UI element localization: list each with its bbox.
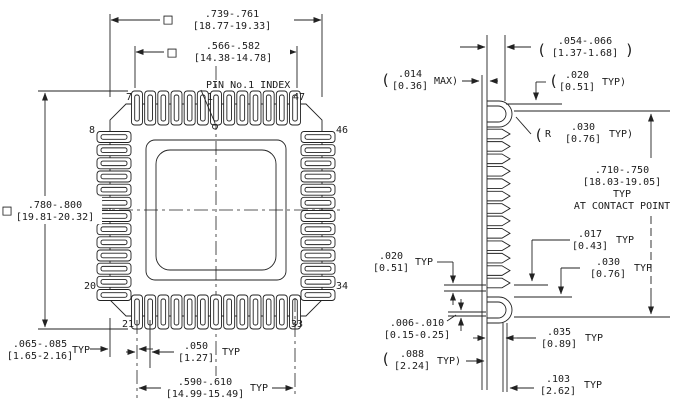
lead-shape [487,166,510,176]
lead-shape [97,276,131,287]
pin-21-label: 21 [122,319,134,330]
pin1-note-text: PIN No.1 INDEX [206,80,290,91]
lead-shape [263,91,274,125]
dim-inch: .065-.085 [13,339,67,350]
dim-corner-offset: .065-.085 [1.65-2.16] TYP [7,318,153,398]
dim-inch: .566-.582 [206,41,260,52]
dim-standoff: .006-.010 [0.15-0.25] [384,299,486,341]
lead-shape [97,263,131,274]
dim-mm: [14.38-14.78] [194,53,272,64]
dim-inch: .020 [565,70,589,81]
leads-right [301,132,335,301]
lead-shape [301,171,335,182]
dim-mm: [0.15-0.25] [384,330,450,341]
dim-mm: [0.43] [572,241,608,252]
leads-left [97,132,131,301]
dim-typ: TYP [584,380,602,391]
lead-shape [301,211,335,222]
dim-mm: [18.77-19.33] [193,21,271,32]
dim-foot-width: .035 [0.89] TYP [473,327,603,350]
lead-shape [224,91,235,125]
lead-shape [132,91,143,125]
j-lead-bottom [487,297,512,323]
paren-open: ( [549,72,558,90]
dim-mm: [18.03-19.05] [583,177,661,188]
dim-inch: .014 [398,69,422,80]
dim-max: MAX) [434,76,458,87]
dim-mm: [14.99-15.49] [166,389,244,400]
lead-shape [250,295,261,329]
dim-typ: TYP) [437,356,461,367]
dim-typ: TYP [415,257,433,268]
dim-protrusion: ( .014 [0.36] MAX) [381,69,498,92]
lead-shape [487,154,510,164]
dim-mm: [19.81-20.32] [16,212,94,223]
dim-typ: TYP [585,333,603,344]
lead-shape [171,295,182,329]
lead-shape [97,211,131,222]
lead-shape [171,91,182,125]
dim-typ: TYP [613,189,631,200]
pin-8-label: 8 [89,125,95,136]
dim-typ: TYP [72,345,90,356]
dim-mm: [0.36] [392,81,428,92]
lead-shape [97,171,131,182]
lead-shape [97,158,131,169]
lead-shape [487,266,510,276]
lead-shape [224,295,235,329]
lead-shape [250,91,261,125]
paren-close: ) [625,41,634,59]
dim-pitch: .050 [1.27] TYP [126,320,240,368]
lead-shape [97,224,131,235]
dim-inch: .035 [547,327,571,338]
lead-shape [301,145,335,156]
lead-shape [301,158,335,169]
lead-shape [197,295,208,329]
dim-mm: [0.89] [541,339,577,350]
dim-typ: TYP [634,263,652,274]
lead-shape [301,224,335,235]
dim-mm: [1.65-2.16] [7,351,73,362]
dim-inch: .050 [184,341,208,352]
lead-shape [97,132,131,143]
lead-shape [158,91,169,125]
top-view: 7 1 47 8 46 20 34 21 33 PIN No.1 INDEX □… [0,6,348,402]
dim-inch: .590-.610 [178,377,232,388]
square-symbol: □ [167,43,176,61]
lead-shape [237,91,248,125]
dim-mm: [2.24] [394,361,430,372]
dim-mm: [1.37-1.68] [552,48,618,59]
package-dimension-drawing: 7 1 47 8 46 20 34 21 33 PIN No.1 INDEX □… [0,0,691,407]
dim-mm: [0.76] [565,134,601,145]
lead-shape [301,197,335,208]
dim-curl-depth: ( .088 [2.24] TYP) [381,349,484,372]
leads-top [132,91,301,125]
lead-shape [301,290,335,301]
radius-symbol: R [545,129,552,140]
lead-shape [301,132,335,143]
lead-shape [487,278,510,288]
paren-open: ( [381,350,390,368]
side-view: ( .054-.066 [1.37-1.68] ) ( .014 [0.36] … [373,35,670,397]
lead-shape [487,241,510,251]
lead-shape [276,91,287,125]
lead-shape [301,263,335,274]
pin-1-label: 1 [207,92,213,103]
lead-shape [276,295,287,329]
lead-shape [211,295,222,329]
lead-shape [487,216,510,226]
lead-shape [263,295,274,329]
dim-note: AT CONTACT POINT [574,201,670,212]
lead-shape [487,179,510,189]
dim-inch: .017 [578,229,602,240]
lead-shape [301,184,335,195]
lead-shape [97,290,131,301]
pin-7-label: 7 [126,92,132,103]
leads-bottom [132,295,301,329]
lead-shape [487,204,510,214]
dim-inch: .103 [546,374,570,385]
dim-typ: TYP) [602,77,626,88]
lead-shape [487,253,510,263]
dim-typ: TYP [250,383,268,394]
side-lead-bumps [487,129,510,288]
dim-inch: .780-.800 [28,200,82,211]
dim-mm: [0.76] [590,269,626,280]
paren-open: ( [537,41,546,59]
dim-hook-clearance: .030 [0.76] TYP [514,257,652,297]
lead-shape [487,191,510,201]
dim-inch: .088 [400,349,424,360]
drawing-svg: 7 1 47 8 46 20 34 21 33 PIN No.1 INDEX □… [0,0,691,407]
dim-typ: TYP) [609,129,633,140]
lead-shape [301,237,335,248]
dim-inch: .030 [571,122,595,133]
lead-shape [487,129,510,139]
dim-mm: [1.27] [178,353,214,364]
square-symbol: □ [2,201,11,219]
lead-shape [237,295,248,329]
dim-typ: TYP [222,347,240,358]
pin-34-label: 34 [336,281,348,292]
j-lead-top [487,101,512,127]
lead-shape [184,295,195,329]
lead-shape [301,250,335,261]
pin-47-label: 47 [293,92,305,103]
lead-shape [97,197,131,208]
dim-inch: .739-.761 [205,9,259,20]
pin-20-label: 20 [84,281,96,292]
dim-inch: .020 [379,251,403,262]
lead-shape [97,250,131,261]
dim-inch: .710-.750 [595,165,649,176]
paren-open: ( [381,71,390,89]
lead-shape [145,91,156,125]
lead-shape [97,145,131,156]
dim-lead-radius: ( R .030 [0.76] TYP) [516,117,633,145]
dim-inch: .054-.066 [558,36,612,47]
dim-inch: .006-.010 [390,318,444,329]
pin-46-label: 46 [336,125,348,136]
pin-33-label: 33 [291,319,303,330]
lead-shape [97,184,131,195]
dim-overall-depth: .103 [2.62] TYP [510,374,602,397]
dim-mm: [2.62] [540,386,576,397]
lead-shape [184,91,195,125]
lead-shape [301,276,335,287]
square-symbol: □ [163,10,172,28]
dim-inch: .030 [596,257,620,268]
dim-mm: [0.51] [373,263,409,274]
paren-open: ( [534,126,543,144]
dim-lead-width: ( .054-.066 [1.37-1.68] ) [460,36,634,59]
lead-shape [487,142,510,152]
lead-shape [487,229,510,239]
dim-typ: TYP [616,235,634,246]
lead-shape [97,237,131,248]
lead-shape [158,295,169,329]
dim-lead-thickness-top: ( .020 [0.51] TYP) [506,70,626,104]
dim-mm: [0.51] [559,82,595,93]
